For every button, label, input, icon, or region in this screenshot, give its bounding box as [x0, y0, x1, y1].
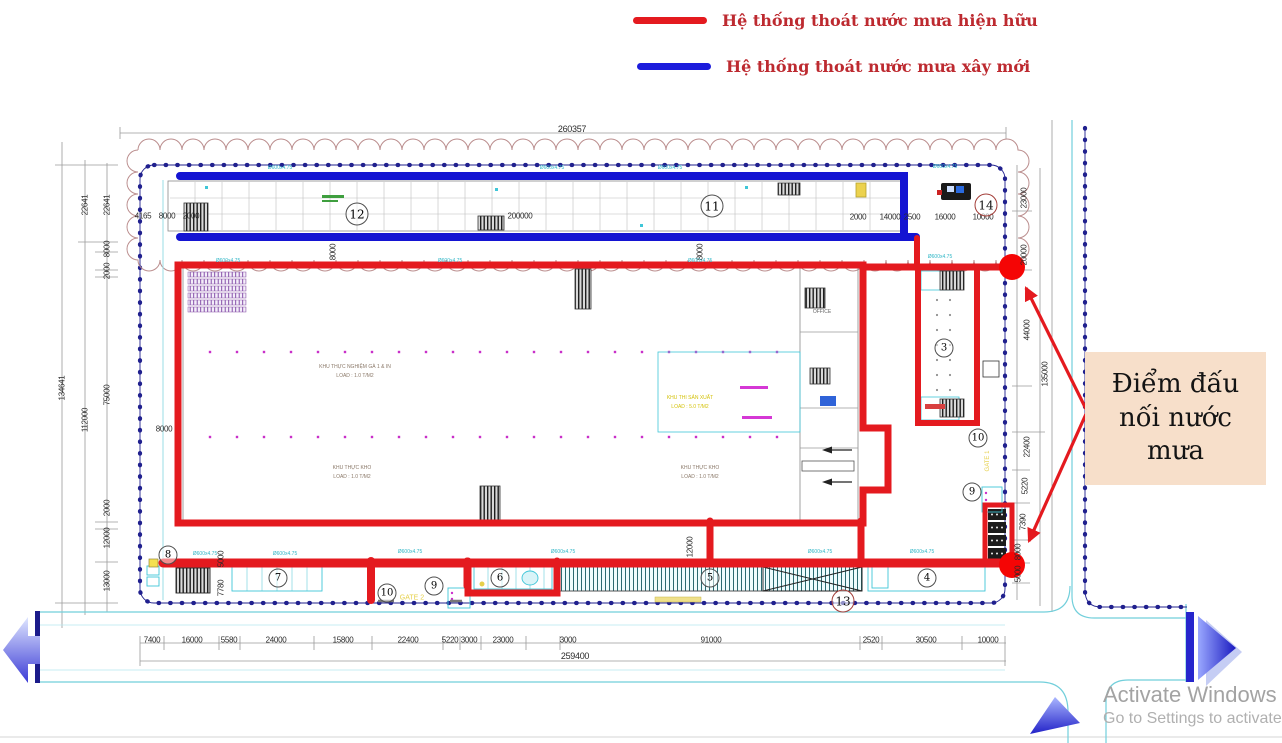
callout-circle-7: 7 — [269, 569, 288, 588]
dim-label: 7400 — [144, 636, 161, 645]
building-3 — [921, 271, 999, 420]
plan-label: LOAD : 5.0 T/M2 — [671, 404, 708, 410]
legend-existing-label: Hệ thống thoát nước mưa hiện hữu — [722, 11, 1038, 30]
legend-new: Hệ thống thoát nước mưa xây mới — [637, 57, 1030, 76]
callout-circle-13: 13 — [832, 590, 855, 613]
callout-circle-12: 12 — [346, 203, 369, 226]
new-drain-lines — [180, 176, 916, 237]
dim-label: 8000 — [156, 425, 173, 434]
plan-label: GATE 1 — [985, 451, 991, 472]
pipe-size-label: Ø600x4.75 — [438, 258, 462, 264]
callout-circle-10: 10 — [378, 584, 397, 603]
legend-existing-line — [633, 17, 707, 24]
traffic-arrows — [3, 612, 1242, 734]
callout-circle-10: 10 — [969, 429, 988, 448]
pipe-size-label: Ø600x4.75 — [688, 258, 712, 264]
dim-label: 3000 — [461, 636, 478, 645]
pipe-size-label: Ø600x4.75 — [910, 549, 934, 555]
dim-label: 200000 — [508, 212, 533, 221]
bottom-buildings — [147, 183, 1002, 608]
legend-new-line — [637, 63, 711, 70]
dim-label: 5000 — [1014, 566, 1023, 583]
generated-decor — [127, 139, 1029, 600]
dim-label: 12000 — [103, 528, 112, 549]
plan-label: GATE 2 — [400, 595, 424, 602]
pipe-size-label: Ø600x4.75 — [933, 164, 957, 170]
plan-label: KHU THỰC KHO — [681, 465, 720, 471]
callout-circle-4: 4 — [918, 569, 937, 588]
callout-circle-6: 6 — [491, 569, 510, 588]
plan-label: KHU THI SẢN XUẤT — [667, 395, 713, 401]
dim-label: 23000 — [1020, 188, 1029, 209]
dim-total-top: 260357 — [558, 124, 586, 134]
dim-label: 22400 — [1023, 437, 1032, 458]
dim-label: 2000 — [850, 213, 867, 222]
left-road-arrow — [3, 617, 40, 683]
dim-label: 8000 — [103, 241, 112, 258]
dim-label: 5000 — [217, 551, 226, 568]
dim-label: 4165 — [135, 212, 152, 221]
plan-label: KHU THỰC NGHIỆM GÀ 1 & IN — [319, 364, 391, 370]
pipe-size-label: Ø600x4.75 — [540, 165, 564, 171]
pipe-size-label: Ø600x4.75 — [273, 551, 297, 557]
plan-label: OFFICE — [813, 309, 831, 315]
dim-label: 7780 — [217, 580, 226, 597]
legend-existing: Hệ thống thoát nước mưa hiện hữu — [633, 11, 1038, 30]
dim-label: 22400 — [398, 636, 419, 645]
dim-label: 23000 — [493, 636, 514, 645]
rain-connection-callout: Điểm đấu nối nước mưa — [1085, 352, 1266, 485]
dim-label: 44000 — [1023, 320, 1032, 341]
plan-label: LOAD : 1.0 T/M2 — [681, 474, 718, 480]
dim-label: 22641 — [81, 195, 90, 216]
dim-label: 30500 — [916, 636, 937, 645]
callout-arrows — [1026, 288, 1086, 541]
pipe-size-label: Ø600x4.75 — [268, 165, 292, 171]
dim-label: 10000 — [978, 636, 999, 645]
dim-label: 13000 — [103, 571, 112, 592]
plan-label: LOAD : 1.0 T/M2 — [333, 474, 370, 480]
revision-cloud — [127, 139, 1029, 271]
dim-label: 2000 — [183, 212, 200, 221]
callout-circle-9: 9 — [425, 577, 444, 596]
down-road-arrow — [1030, 697, 1080, 734]
dim-label: 75000 — [103, 385, 112, 406]
dim-label: 14000 — [880, 213, 901, 222]
callout-circle-11: 11 — [701, 195, 724, 218]
dim-label: 8000 — [329, 244, 338, 261]
dim-label: 16000 — [935, 213, 956, 222]
dim-label: 5220 — [1021, 478, 1030, 495]
dim-label: 135000 — [1041, 362, 1050, 387]
dim-label: 2000 — [103, 263, 112, 280]
dim-label: 5580 — [221, 636, 238, 645]
pipe-size-label: Ø600x4.75 — [551, 549, 575, 555]
dim-label: 12000 — [686, 537, 695, 558]
dim-label: 16000 — [182, 636, 203, 645]
callout-circle-5: 5 — [701, 569, 720, 588]
pipe-size-label: Ø600x4.75 — [658, 165, 682, 171]
dim-label: 2520 — [863, 636, 880, 645]
dim-label: 91000 — [701, 636, 722, 645]
dim-label: 5220 — [442, 636, 459, 645]
pipe-size-label: Ø600x4.75 — [216, 258, 240, 264]
dim-label: 24000 — [266, 636, 287, 645]
dim-label: 15800 — [333, 636, 354, 645]
dim-label: 2500 — [904, 213, 921, 222]
plan-label: KHU THỰC KHO — [333, 465, 372, 471]
callout-circle-3: 3 — [935, 339, 954, 358]
dim-label: 8000 — [159, 212, 176, 221]
dim-label: 8000 — [1014, 544, 1023, 561]
pipe-size-label: Ø600x4.75 — [928, 254, 952, 260]
pipe-size-label: Ø600x4.75 — [193, 551, 217, 557]
dim-label: 7390 — [1019, 514, 1028, 531]
dim-label: 20000 — [1020, 245, 1029, 266]
building-strip-11-12 — [168, 181, 905, 231]
dim-label: 134641 — [58, 376, 67, 401]
dim-label: 22641 — [103, 195, 112, 216]
dim-label: 3000 — [560, 636, 577, 645]
dim-label: 112000 — [81, 408, 90, 432]
plan-label: LOAD : 1.0 T/M2 — [336, 373, 373, 379]
road-lines — [37, 120, 1186, 743]
pipe-size-label: Ø600x4.75 — [398, 549, 422, 555]
dim-total-bottom: 259400 — [561, 651, 589, 661]
callout-circle-8: 8 — [159, 546, 178, 565]
legend-new-label: Hệ thống thoát nước mưa xây mới — [726, 57, 1030, 76]
site-plan-canvas: 4165800020002000002000140002500160001000… — [0, 0, 1282, 743]
callout-circle-14: 14 — [975, 194, 998, 217]
dim-label: 2000 — [103, 500, 112, 517]
callout-circle-9: 9 — [963, 483, 982, 502]
main-building — [163, 180, 858, 600]
pipe-size-label: Ø600x4.75 — [808, 549, 832, 555]
